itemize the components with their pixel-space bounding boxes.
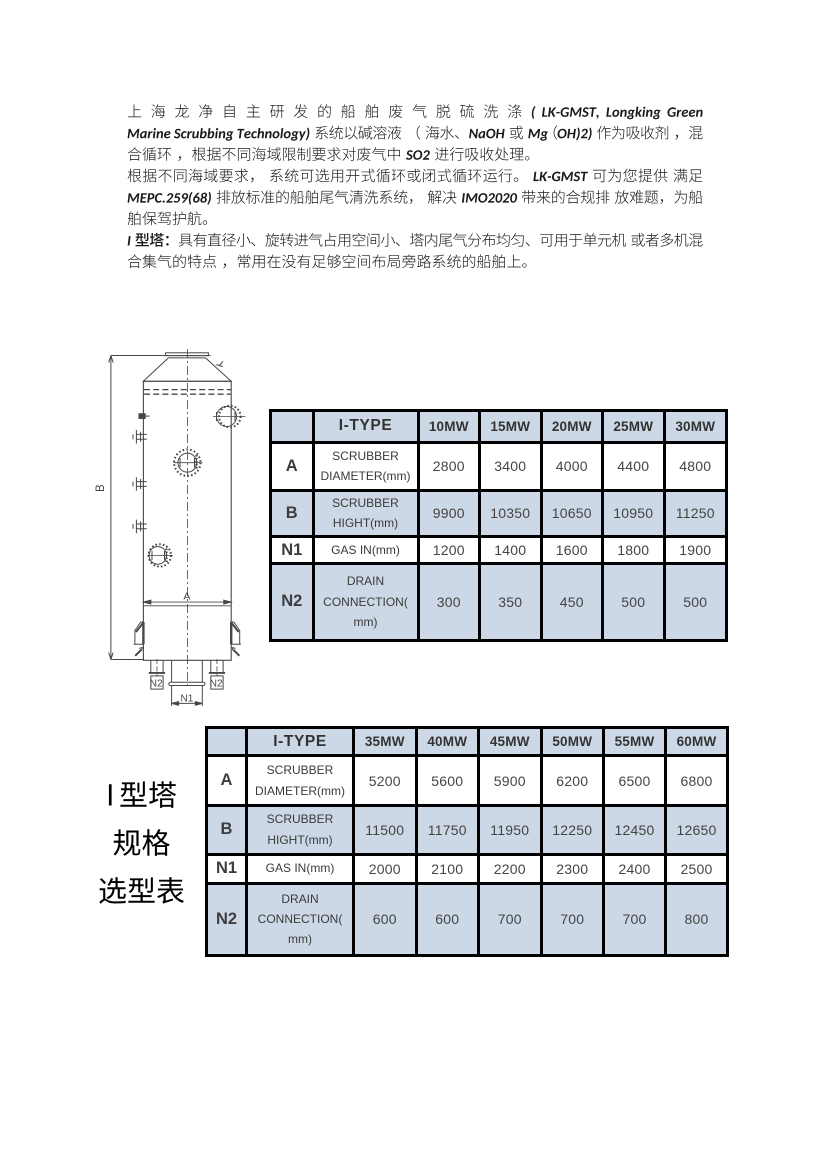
svg-text:A: A — [183, 591, 190, 603]
svg-text:N1: N1 — [181, 694, 194, 705]
svg-text:N2: N2 — [150, 679, 163, 690]
svg-text:N2: N2 — [210, 679, 223, 690]
svg-text:B: B — [95, 484, 107, 492]
